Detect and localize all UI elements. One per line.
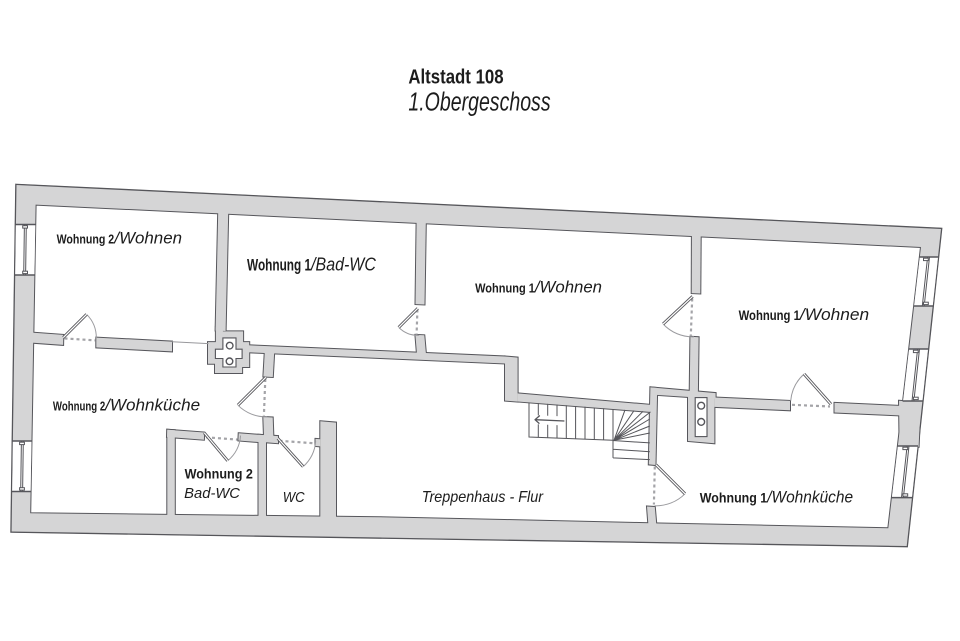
svg-text:Wohnung 2: Wohnung 2	[185, 467, 253, 482]
svg-text:/Wohnen: /Wohnen	[799, 305, 869, 324]
svg-text:Wohnung 1: Wohnung 1	[700, 489, 768, 505]
svg-text:Wohnung 1: Wohnung 1	[247, 256, 311, 274]
svg-text:WC: WC	[283, 490, 305, 506]
svg-text:Wohnung 1: Wohnung 1	[475, 281, 535, 296]
svg-text:Wohnung 1: Wohnung 1	[739, 308, 801, 323]
svg-text:Altstadt 108: Altstadt 108	[408, 66, 503, 88]
svg-text:1.Obergeschoss: 1.Obergeschoss	[408, 87, 550, 117]
svg-text:Bad-WC: Bad-WC	[184, 486, 240, 502]
svg-text:/Wohnen: /Wohnen	[534, 278, 602, 297]
svg-text:/Bad-WC: /Bad-WC	[309, 253, 376, 274]
svg-text:Wohnung 2: Wohnung 2	[57, 231, 115, 246]
svg-text:Wohnung 2: Wohnung 2	[53, 398, 105, 413]
svg-text:/Wohnen: /Wohnen	[113, 228, 182, 247]
svg-text:Treppenhaus - Flur: Treppenhaus - Flur	[422, 489, 544, 506]
svg-text:/Wohnküche: /Wohnküche	[104, 396, 200, 414]
svg-text:/Wohnküche: /Wohnküche	[766, 487, 853, 506]
